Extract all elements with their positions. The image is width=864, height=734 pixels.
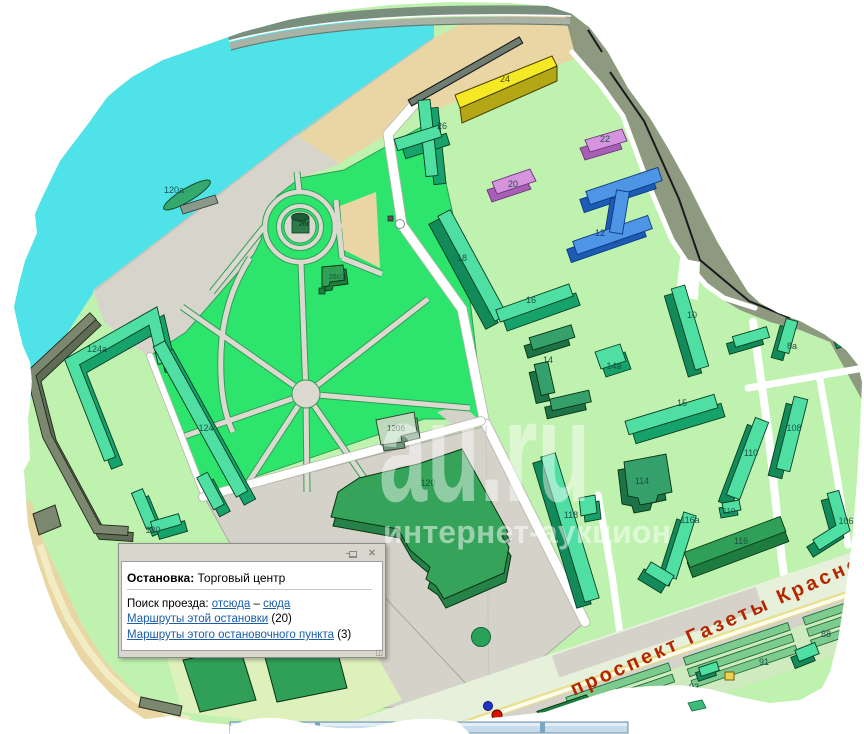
svg-text:91: 91 <box>759 657 769 667</box>
svg-text:116а: 116а <box>680 515 699 525</box>
svg-text:14а: 14а <box>606 361 621 371</box>
svg-text:8а: 8а <box>787 341 797 351</box>
svg-text:26г: 26г <box>299 221 310 228</box>
svg-text:15: 15 <box>677 398 687 408</box>
svg-text:10: 10 <box>687 310 697 320</box>
svg-text:20: 20 <box>508 179 518 189</box>
svg-text:120а: 120а <box>164 185 184 195</box>
svg-text:110: 110 <box>723 507 736 516</box>
svg-text:интернет-аукцион: интернет-аукцион <box>383 514 671 550</box>
svg-text:au.ru: au.ru <box>379 372 590 532</box>
svg-text:130: 130 <box>145 525 160 535</box>
svg-text:108: 108 <box>786 423 801 433</box>
svg-text:26г/1: 26г/1 <box>329 274 345 281</box>
svg-text:88: 88 <box>821 629 831 639</box>
svg-text:124а: 124а <box>87 344 107 354</box>
svg-text:110: 110 <box>744 448 758 458</box>
svg-text:124: 124 <box>198 423 213 433</box>
svg-text:18: 18 <box>457 253 467 263</box>
svg-text:116: 116 <box>734 536 748 546</box>
svg-text:26: 26 <box>437 121 447 131</box>
svg-text:16: 16 <box>526 295 536 305</box>
svg-text:106: 106 <box>838 516 853 526</box>
svg-text:24: 24 <box>500 74 510 84</box>
svg-text:22: 22 <box>600 134 610 144</box>
svg-text:93: 93 <box>689 682 699 692</box>
svg-text:114: 114 <box>635 476 649 486</box>
svg-text:12: 12 <box>595 228 605 238</box>
svg-text:14: 14 <box>543 355 553 365</box>
